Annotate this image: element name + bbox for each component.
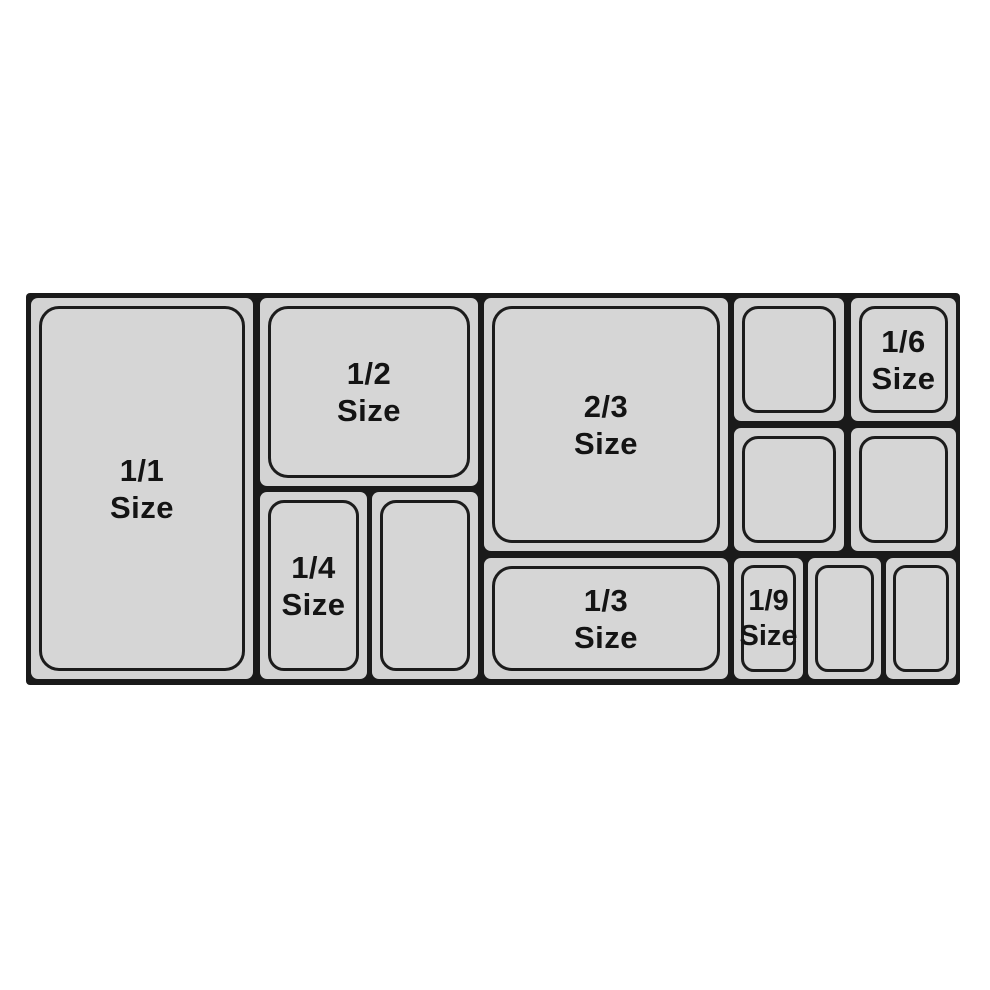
pan-1-1: 1/1 Size [31,298,253,679]
pan-1-6-caption: Size [871,360,935,397]
pan-1-1-caption: Size [110,489,174,526]
pan-1-9-labeled: 1/9 Size [734,558,803,679]
pan-1-4-unlabeled [372,492,478,679]
pan-1-1-label: 1/1 Size [110,452,174,526]
pan-1-2-label: 1/2 Size [337,355,401,429]
pan-1-1-fraction: 1/1 [110,452,174,489]
pan-1-4-label: 1/4 Size [281,549,345,623]
pan-1-9-label: 1/9 Size [739,584,797,654]
pan-1-9-caption: Size [739,619,797,654]
pan-2-3: 2/3 Size [484,298,728,551]
pan-1-2-fraction: 1/2 [337,355,401,392]
pan-1-4-fraction: 1/4 [281,549,345,586]
pan-1-6-label: 1/6 Size [871,323,935,397]
pan-size-diagram-board: 1/1 Size 1/2 Size 1/4 Size 2/3 Size [26,293,960,685]
pan-1-6-bottom-left [734,428,844,551]
pan-1-3-label: 1/3 Size [574,582,638,656]
pan-2-3-fraction: 2/3 [574,388,638,425]
pan-1-9-middle [808,558,881,679]
pan-1-2-caption: Size [337,392,401,429]
pan-size-diagram-page: 1/1 Size 1/2 Size 1/4 Size 2/3 Size [0,0,990,990]
pan-1-9-fraction: 1/9 [739,584,797,619]
pan-1-3: 1/3 Size [484,558,728,679]
pan-1-6-labeled: 1/6 Size [851,298,956,421]
pan-1-4: 1/4 Size [260,492,367,679]
pan-1-3-fraction: 1/3 [574,582,638,619]
pan-1-3-caption: Size [574,619,638,656]
pan-2-3-label: 2/3 Size [574,388,638,462]
pan-1-4-caption: Size [281,586,345,623]
pan-1-9-right [886,558,956,679]
pan-1-6-fraction: 1/6 [871,323,935,360]
pan-2-3-caption: Size [574,425,638,462]
pan-1-6-bottom-right [851,428,956,551]
pan-1-2: 1/2 Size [260,298,478,486]
pan-1-6-top-left [734,298,844,421]
